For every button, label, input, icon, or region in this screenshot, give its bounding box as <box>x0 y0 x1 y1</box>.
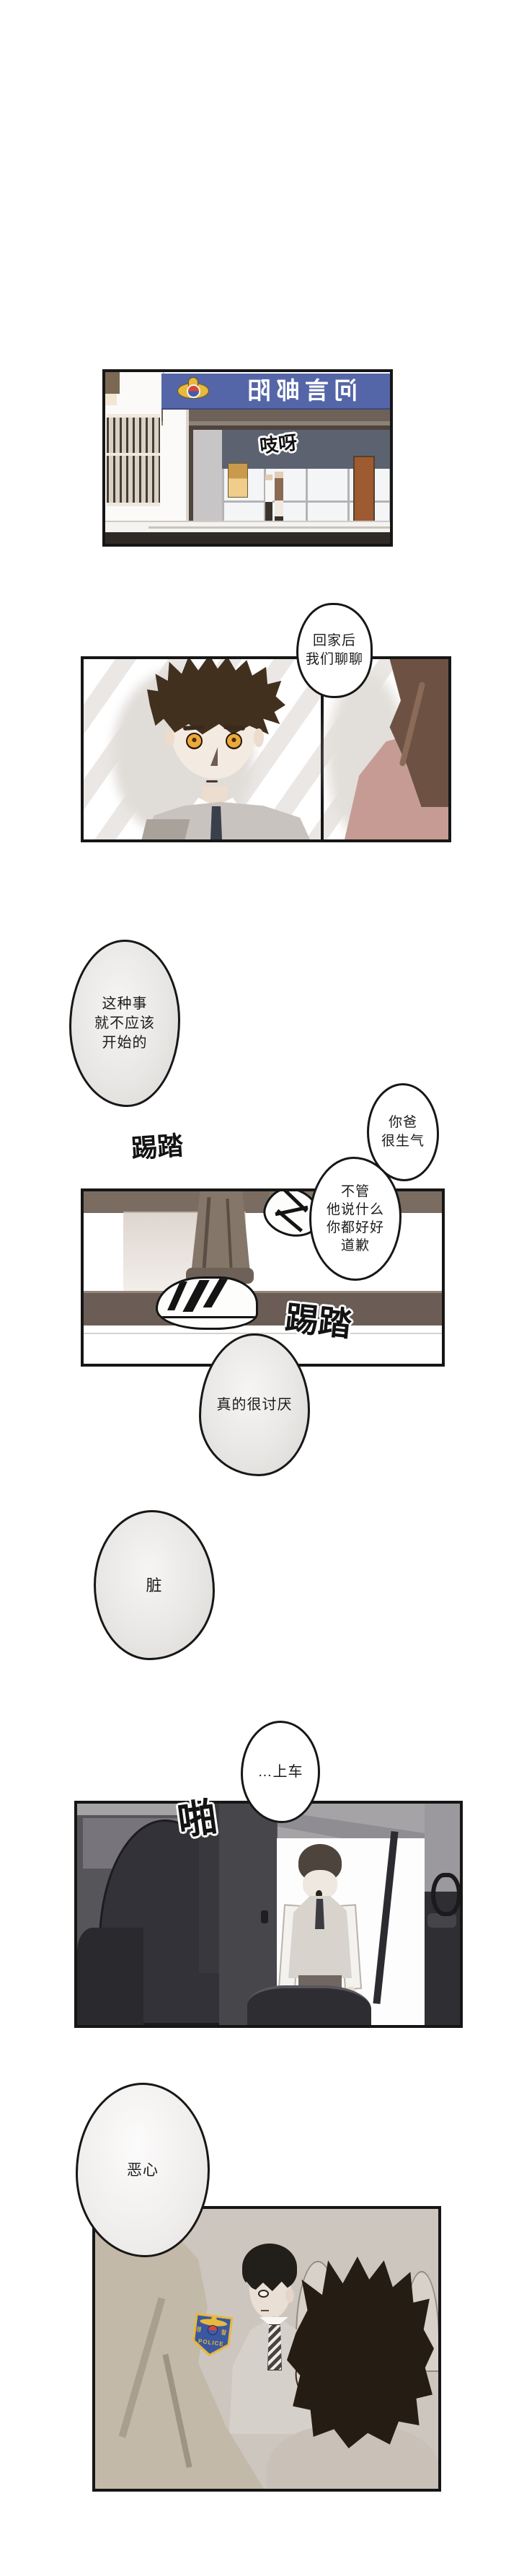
bubble-disgusting-text: 恶心 <box>127 2161 159 2180</box>
bubble-apologize-text: 不管 他说什么 你都好好 道歉 <box>327 1183 384 1255</box>
second-seat-corner <box>77 1928 143 2025</box>
police-emblem-icon <box>177 377 208 405</box>
roof-corner-brown <box>105 372 120 394</box>
father-striped-tie <box>267 2324 282 2370</box>
father-hair <box>242 2244 297 2291</box>
sfx-footsteps-lower: 踢踏 <box>283 1292 354 1346</box>
step-edge-line <box>148 526 390 529</box>
boy-ear-left <box>164 728 174 747</box>
car-boy-tie <box>315 1899 324 1929</box>
brown-door <box>353 456 375 525</box>
badge-korean-left: 경 <box>195 2325 205 2333</box>
sfx-door-creak: 吱呀 <box>258 428 298 458</box>
boy-tie <box>210 806 222 839</box>
yellow-plaque <box>228 463 248 498</box>
shoe-sole-line <box>158 1316 258 1318</box>
boy-ear-right <box>254 728 264 747</box>
thought-bubble-dirty: 脏 <box>94 1510 215 1660</box>
panel-portrait <box>81 656 451 842</box>
canopy-fascia <box>161 410 390 421</box>
bubble-dad-angry-text: 你爸 很生气 <box>381 1113 425 1151</box>
emblem-taegeuk <box>187 384 200 398</box>
stair-band-mid <box>84 1291 442 1326</box>
police-sign: 问言邮阳 <box>161 374 390 410</box>
boy-eye-right <box>226 733 242 749</box>
father-mouth <box>261 2310 269 2311</box>
window-grate <box>107 414 160 506</box>
speech-bubble-home-talk: 回家后 我们聊聊 <box>296 603 373 698</box>
grate-rail <box>107 453 160 456</box>
interior-gray-pillar <box>193 430 222 526</box>
thought-bubble-disgusting: 恶心 <box>76 2083 210 2257</box>
police-badge-icon: 경 찰 POLICE <box>191 2313 234 2359</box>
father-ear <box>285 2288 294 2303</box>
badge-eagle-head <box>210 2316 217 2323</box>
figure-person-white-shirt <box>265 475 272 524</box>
comic-page: 问言邮阳 吱呀 <box>0 0 519 2576</box>
entrance-pillar <box>163 410 189 529</box>
roof-corner-cream <box>105 394 117 405</box>
bubble-dirty-text: 脏 <box>146 1576 162 1595</box>
figure-person-brown-jacket <box>275 472 283 524</box>
boy-sweater-shading <box>142 819 190 839</box>
grab-handle <box>431 1873 461 1916</box>
thought-bubble-should-not: 这种事 就不应该 开始的 <box>69 940 180 1107</box>
boy-mouth <box>206 780 218 782</box>
police-sign-text: 问言邮阳 <box>213 376 386 405</box>
badge-korean-right: 찰 <box>221 2329 230 2337</box>
sfx-footsteps-upper: 踢踏 <box>130 1125 184 1166</box>
sfx-door-slam: 啪 <box>174 1785 220 1847</box>
panel-car-interior <box>74 1801 463 2028</box>
door-lock-knob <box>261 1910 268 1923</box>
speech-bubble-get-in: …上车 <box>241 1721 320 1823</box>
speech-bubble-apologize: 不管 他说什么 你都好好 道歉 <box>309 1157 402 1281</box>
shoe-stripe-3 <box>167 1282 187 1310</box>
rear-bench-seat <box>247 1985 371 2025</box>
bubble-really-annoying-text: 真的很讨厌 <box>217 1395 293 1415</box>
boy-eye-left <box>186 733 203 749</box>
sneaker-lower <box>156 1276 258 1330</box>
bubble-home-talk-text: 回家后 我们聊聊 <box>306 632 363 669</box>
street-dark-band <box>105 532 390 544</box>
bubble-get-in-text: …上车 <box>258 1763 303 1782</box>
panel-police-station-exterior: 问言邮阳 <box>102 369 393 547</box>
bubble-should-not-text: 这种事 就不应该 开始的 <box>94 994 155 1053</box>
father-eye <box>258 2290 269 2298</box>
seatbelt-strap <box>373 1831 398 2004</box>
